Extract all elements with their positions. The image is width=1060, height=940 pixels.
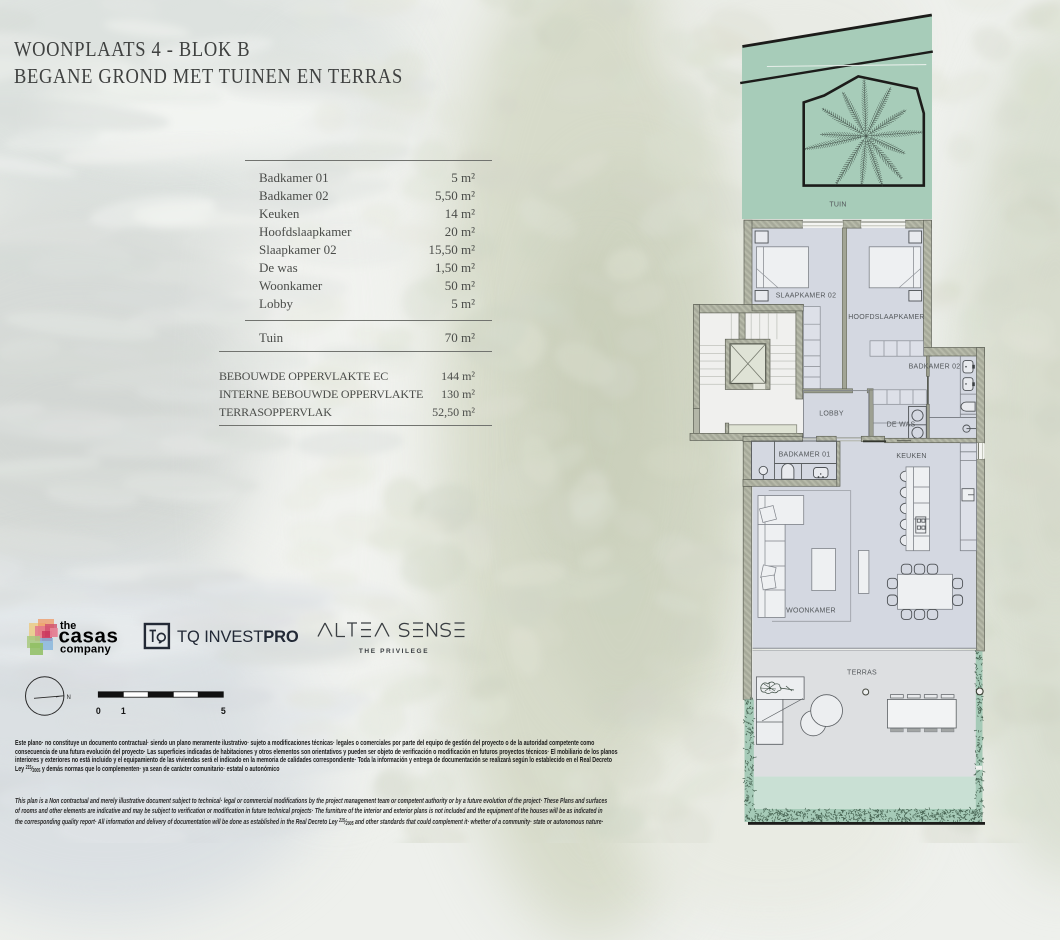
svg-text:0: 0 — [96, 706, 101, 716]
svg-text:KEUKEN: KEUKEN — [896, 453, 926, 460]
svg-text:THE PRIVILEGE: THE PRIVILEGE — [359, 648, 429, 655]
svg-text:company: company — [60, 644, 112, 656]
svg-text:N: N — [67, 695, 71, 701]
svg-text:HOOFDSLAAPKAMER: HOOFDSLAAPKAMER — [848, 314, 925, 321]
svg-text:WOONKAMER: WOONKAMER — [786, 608, 836, 615]
svg-text:TQ INVESTPRO: TQ INVESTPRO — [177, 628, 299, 646]
svg-text:DE WAS: DE WAS — [887, 422, 916, 429]
svg-text:BADKAMER 01: BADKAMER 01 — [779, 452, 831, 459]
svg-text:SLAAPKAMER 02: SLAAPKAMER 02 — [776, 293, 836, 300]
svg-text:LOBBY: LOBBY — [819, 411, 844, 418]
svg-text:1: 1 — [121, 706, 126, 716]
svg-text:TERRAS: TERRAS — [847, 670, 877, 677]
svg-text:BADKAMER 02: BADKAMER 02 — [909, 364, 961, 371]
svg-text:TUIN: TUIN — [829, 202, 846, 209]
svg-text:5: 5 — [221, 706, 226, 716]
